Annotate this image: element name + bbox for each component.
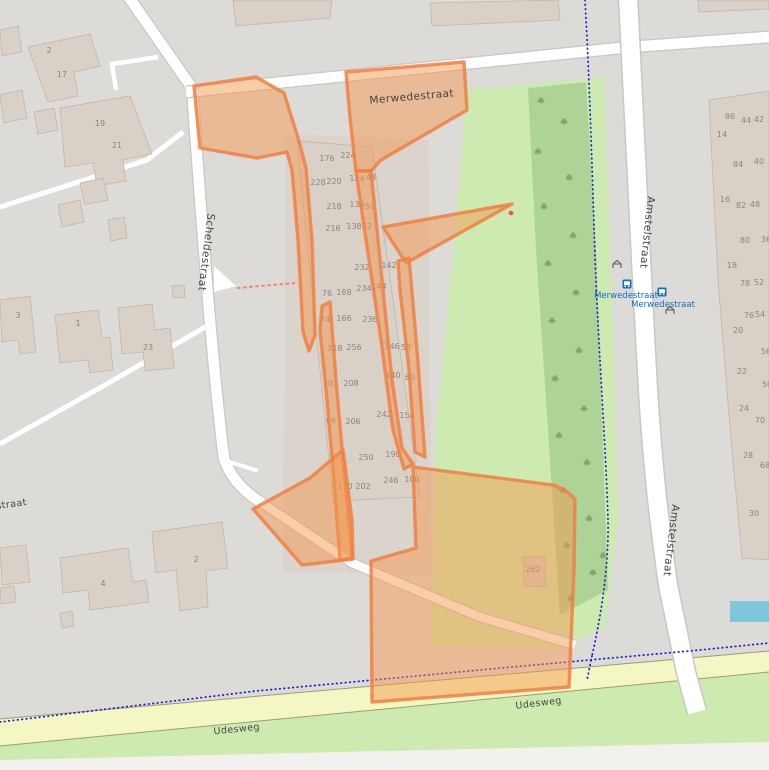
house-number: 21	[112, 141, 122, 150]
house-number: 176	[319, 154, 334, 163]
bus-stop-icon[interactable]	[623, 280, 632, 289]
map-canvas[interactable]: 2171921312342176224228220134482181365021…	[0, 0, 769, 770]
house-number: 256	[346, 343, 361, 352]
map-viewport[interactable]: 2171921312342176224228220134482181365021…	[0, 0, 769, 770]
house-number: 2	[46, 46, 51, 55]
house-number: 16	[720, 195, 730, 204]
house-number: 36	[761, 235, 769, 244]
poi-dot	[509, 211, 514, 216]
house-number: 76	[744, 311, 754, 320]
house-number: 24	[739, 404, 749, 413]
house-number: 44	[741, 116, 751, 125]
house-number: 166	[336, 314, 351, 323]
house-number: 228	[310, 178, 325, 187]
house-number: 2	[193, 555, 198, 564]
house-number: 20	[733, 326, 743, 335]
house-number: 82	[736, 201, 746, 210]
house-number: 22	[737, 367, 747, 376]
house-number: 78	[740, 279, 750, 288]
house-number: 202	[355, 482, 370, 491]
house-number: 246	[383, 476, 398, 485]
house-number: 42	[754, 115, 764, 124]
house-number: 3	[15, 311, 20, 320]
house-number: 142	[381, 261, 396, 270]
bus-stop-label: Merwedestraat	[631, 300, 696, 310]
house-number: 206	[345, 417, 360, 426]
house-number: 48	[750, 200, 760, 209]
house-number: 76	[322, 289, 332, 298]
house-number: 14	[717, 130, 727, 139]
house-number: 250	[358, 453, 373, 462]
house-number: 168	[336, 288, 351, 297]
house-number: 40	[754, 157, 764, 166]
house-number: 1	[75, 319, 80, 328]
house-number: 52	[754, 278, 764, 287]
house-number: 56	[761, 347, 769, 356]
house-number: 17	[57, 70, 67, 79]
house-number: 216	[325, 224, 340, 233]
house-number: 208	[343, 379, 358, 388]
water-feature	[730, 601, 769, 622]
house-number: 28	[743, 451, 753, 460]
house-number: 50	[762, 380, 769, 389]
house-number: 54	[755, 310, 765, 319]
house-number: 232	[354, 263, 369, 272]
house-number: 218	[326, 202, 341, 211]
house-number: 30	[749, 509, 759, 518]
bus-stop-icon[interactable]	[658, 288, 667, 297]
house-number: 86	[725, 112, 735, 121]
house-number: 68	[760, 461, 769, 470]
house-number: 138	[346, 222, 361, 231]
house-number: 220	[326, 177, 341, 186]
house-number: 70	[755, 416, 765, 425]
house-number: 23	[143, 343, 153, 352]
house-number: 19	[95, 119, 105, 128]
house-number: 80	[740, 236, 750, 245]
house-number: 84	[733, 160, 743, 169]
house-number: 18	[727, 261, 737, 270]
house-number: 236	[362, 315, 377, 324]
house-number: 4	[100, 579, 105, 588]
house-number: 234	[356, 284, 371, 293]
